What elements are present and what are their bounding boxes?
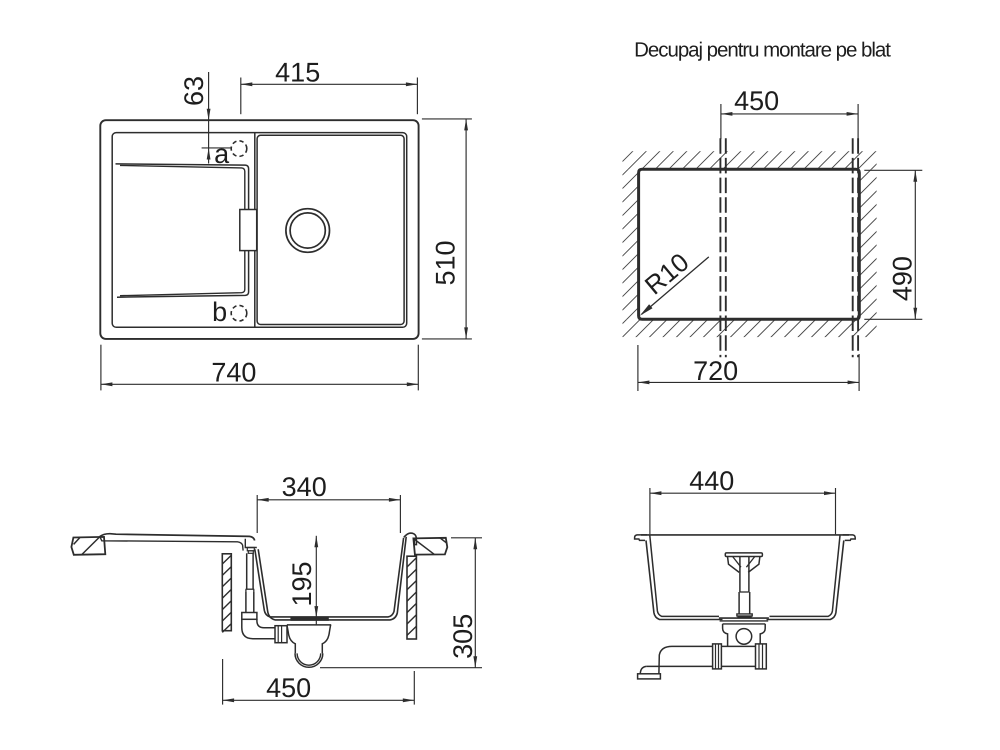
svg-text:340: 340 [282,472,327,502]
svg-text:63: 63 [179,76,209,106]
svg-text:450: 450 [734,86,779,116]
svg-text:195: 195 [287,561,317,606]
svg-text:490: 490 [888,256,918,301]
svg-text:a: a [214,139,230,169]
svg-text:740: 740 [211,358,256,388]
svg-text:720: 720 [693,356,738,386]
svg-text:415: 415 [275,58,320,88]
svg-text:b: b [212,297,227,327]
svg-text:440: 440 [689,466,734,496]
svg-text:450: 450 [266,673,311,703]
svg-text:305: 305 [448,614,478,659]
svg-text:510: 510 [431,240,461,285]
svg-text:Decupaj pentru montare pe blat: Decupaj pentru montare pe blat [634,39,891,62]
